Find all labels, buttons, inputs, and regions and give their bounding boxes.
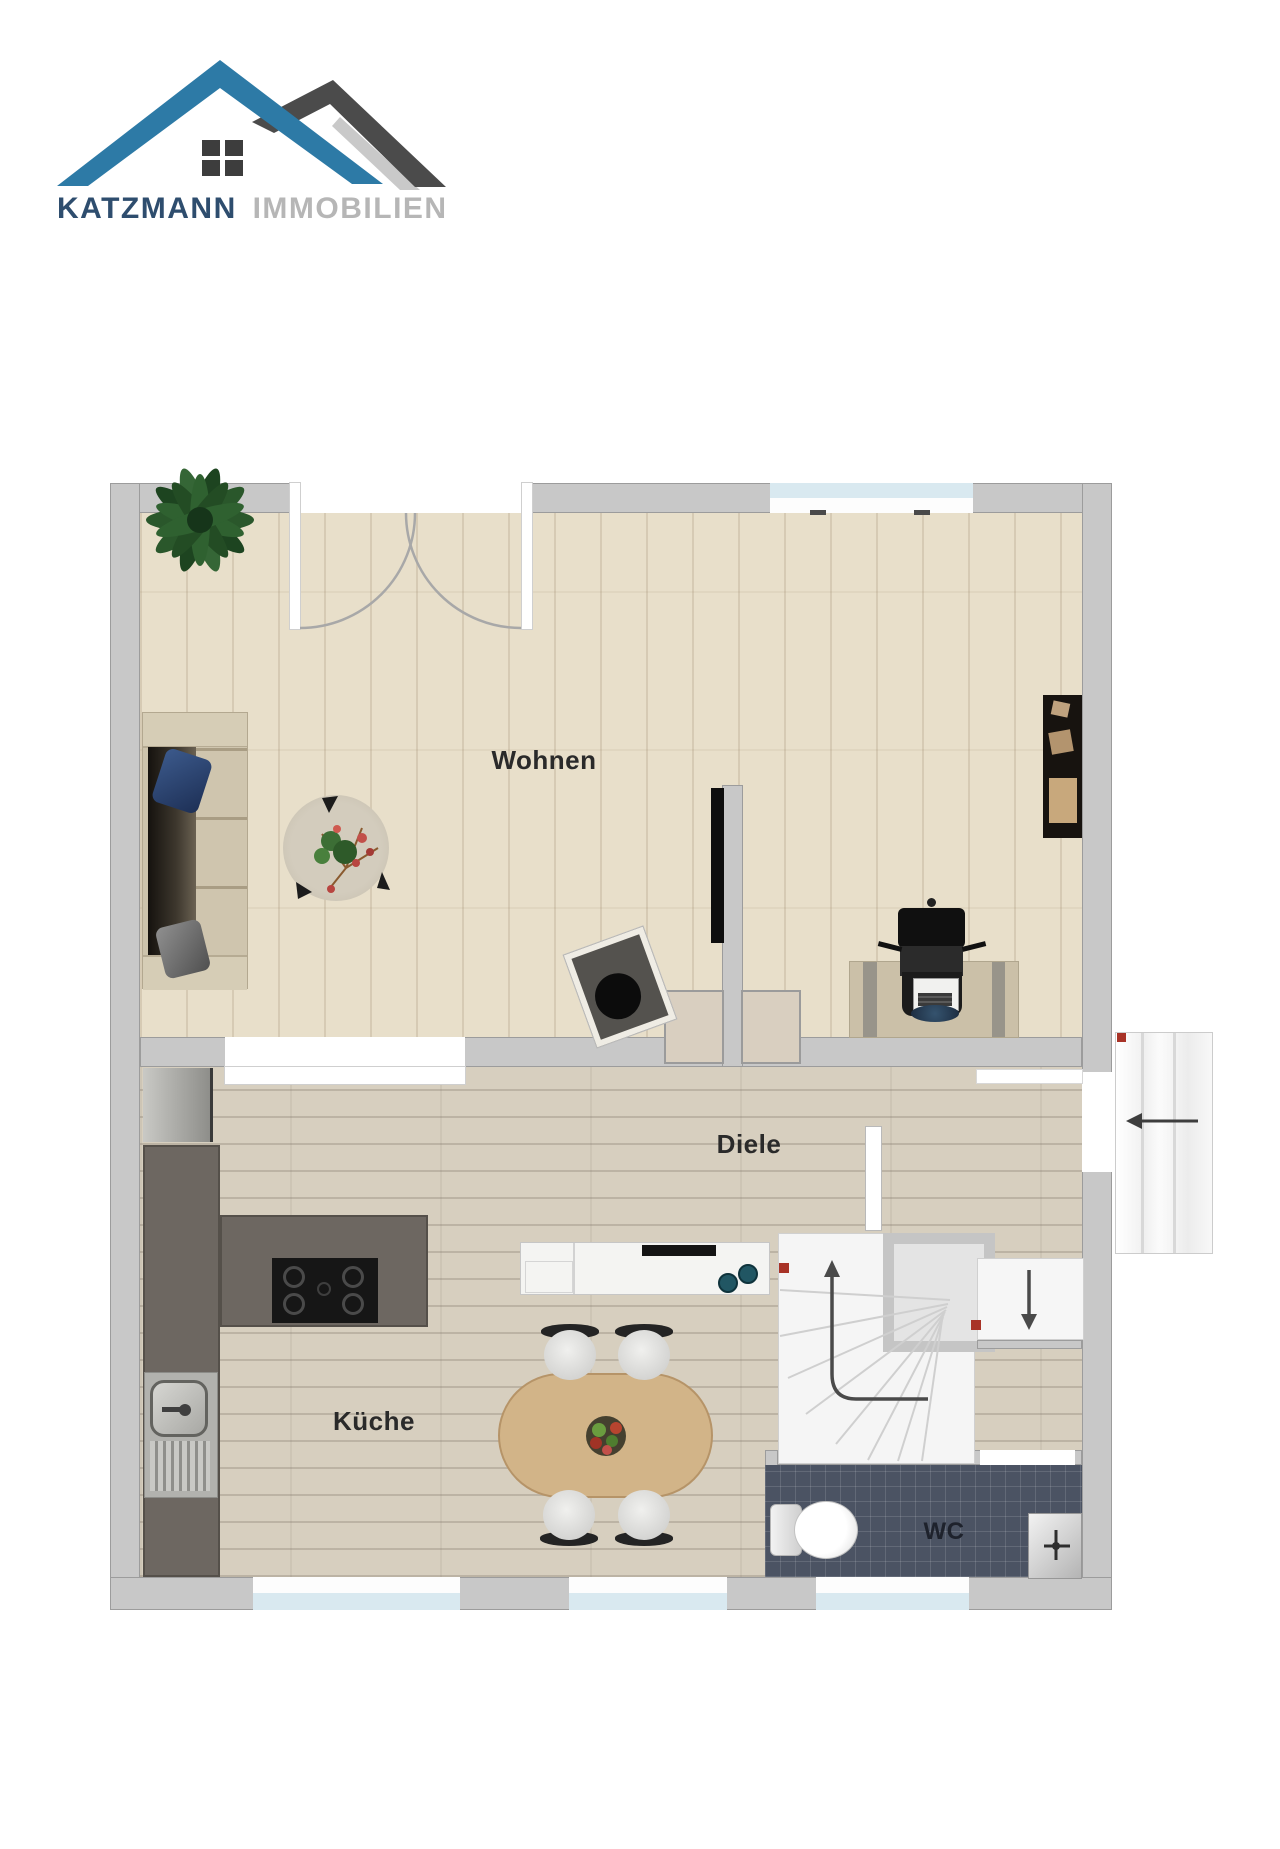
burner: [283, 1293, 305, 1315]
logo-window-icon: [202, 140, 243, 176]
kitchen-door-opening: [225, 1037, 465, 1067]
step-edge: [1173, 1033, 1176, 1253]
window-bottom-1: [253, 1577, 357, 1610]
window-top-1: [770, 483, 871, 513]
company-logo: KATZMANN IMMOBILIEN: [0, 0, 520, 250]
staircase-down-flight: [977, 1258, 1084, 1340]
sideboard-shelf: [1049, 778, 1077, 823]
closet-left: [664, 990, 724, 1064]
cooktop: [272, 1258, 378, 1323]
sideboard-decor: [1051, 700, 1071, 717]
sofa: [143, 713, 247, 988]
wall-left: [110, 483, 140, 1610]
door-jamb-left: [290, 483, 300, 629]
window-glass: [816, 1593, 894, 1610]
speaker-cone-icon: [589, 967, 648, 1026]
window-sill: [253, 1577, 357, 1593]
window-bottom-6: [894, 1577, 969, 1610]
window-sill: [357, 1577, 460, 1593]
counter-cabinet: [525, 1261, 573, 1293]
window-glass: [894, 1593, 969, 1610]
window-sill: [648, 1577, 727, 1593]
toilet-bowl: [794, 1501, 858, 1559]
window-glass: [357, 1593, 460, 1610]
room-label-diele: Diele: [649, 1129, 849, 1160]
page: { "logo": { "brand": "KATZMANN", "suffix…: [0, 0, 1280, 1849]
window-glass: [569, 1593, 648, 1610]
counter-divider: [573, 1243, 575, 1294]
step-edge: [1141, 1033, 1144, 1253]
logo-brand-name: KATZMANN: [57, 192, 237, 225]
living-door-opening: [290, 483, 533, 513]
exterior-entry-steps: [1115, 1032, 1213, 1254]
room-label-kueche: Küche: [274, 1406, 474, 1437]
dining-chair: [615, 1490, 673, 1546]
sink-basin: [150, 1380, 208, 1437]
dining-table: [498, 1373, 713, 1498]
window-glass: [253, 1593, 357, 1610]
burner: [342, 1293, 364, 1315]
wall-stub: [722, 785, 743, 1067]
logo-brand-suffix: IMMOBILIEN: [253, 192, 448, 225]
burner: [283, 1266, 305, 1288]
chair-headrest: [898, 908, 965, 948]
window-bottom-2: [357, 1577, 460, 1610]
window-sill: [770, 498, 871, 513]
window-bottom-5: [816, 1577, 894, 1610]
sink-drainboard: [150, 1441, 210, 1491]
chair-arm-right: [962, 941, 986, 952]
wc-door-opening: [980, 1450, 1075, 1465]
counter-basin: [718, 1273, 738, 1293]
open-door-leaf: [866, 1127, 881, 1230]
counter-white: [520, 1242, 770, 1295]
desk-mat: [911, 1005, 959, 1022]
entry-threshold: [977, 1070, 1082, 1083]
window-sill: [871, 498, 973, 513]
window-top-2: [871, 483, 973, 513]
chair-seat: [543, 1490, 595, 1540]
sideboard-decor: [1048, 729, 1073, 754]
window-sill: [816, 1577, 894, 1593]
chair-knob: [927, 898, 936, 907]
chair-seat: [618, 1490, 670, 1540]
window-glass: [648, 1593, 727, 1610]
burner-small: [317, 1282, 331, 1296]
dining-chair: [540, 1490, 598, 1546]
window-glass: [871, 483, 973, 498]
sideboard: [1043, 695, 1082, 838]
kitchen-counter-left: [143, 1145, 220, 1577]
fridge: [143, 1068, 213, 1142]
window-bottom-3: [569, 1577, 648, 1610]
room-label-wohnen: Wohnen: [444, 745, 644, 776]
tv-screen: [711, 788, 724, 943]
counter-basin: [738, 1264, 758, 1284]
dining-chair: [615, 1324, 673, 1380]
window-bottom-4: [648, 1577, 727, 1610]
kitchen-door-leaf: [225, 1067, 465, 1084]
sofa-armrest-top: [143, 713, 247, 748]
room-label-wc: WC: [894, 1518, 994, 1546]
chair-seat: [618, 1330, 670, 1380]
dining-chair: [541, 1324, 599, 1380]
desk-stripe: [992, 962, 1005, 1037]
window-glass: [770, 483, 871, 498]
chair-seat: [544, 1330, 596, 1380]
logo-wordmark: KATZMANN IMMOBILIEN: [57, 192, 448, 226]
kitchen-sink-unit: [145, 1373, 217, 1497]
logo-house-icon: [40, 40, 470, 200]
wall-right: [1082, 483, 1112, 1610]
window-sill: [569, 1577, 648, 1593]
round-rug: [283, 795, 389, 901]
window-sill: [894, 1577, 969, 1593]
desk-stripe: [863, 962, 877, 1037]
entry-door-opening: [1082, 1072, 1112, 1172]
stair-flight-edge: [977, 1340, 1082, 1349]
counter-appliance: [642, 1245, 716, 1256]
wc-washbasin: [1028, 1513, 1082, 1579]
closet-right: [741, 990, 801, 1064]
burner: [342, 1266, 364, 1288]
door-jamb-right: [522, 483, 532, 629]
